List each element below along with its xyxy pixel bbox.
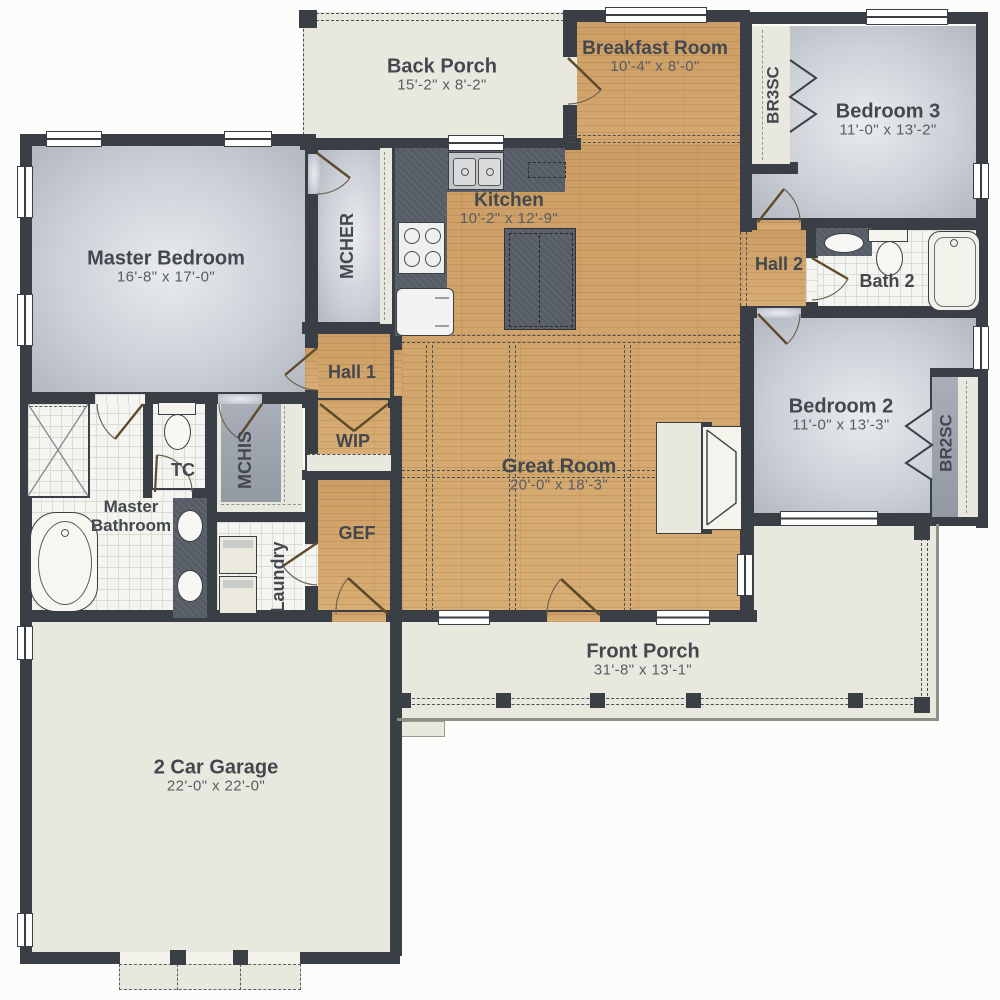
opening — [95, 394, 145, 404]
room-name: Hall 2 — [755, 254, 803, 274]
opening — [305, 544, 318, 586]
window — [224, 131, 272, 147]
bath2-sink — [824, 233, 864, 253]
room-label-hall2: Hall 2 — [755, 254, 803, 274]
room-name: Back Porch — [387, 55, 497, 77]
floor-plan: Back Porch 15'-2" x 8'-2" Breakfast Room… — [0, 0, 1000, 1000]
room-label-bedroom3: Bedroom 3 11'-0" x 13'-2" — [836, 100, 940, 139]
room-label-hall1: Hall 1 — [328, 362, 376, 382]
garage-door-post — [170, 950, 186, 965]
tub-faucet — [61, 529, 69, 537]
room-label-tc: TC — [171, 460, 195, 480]
wall — [205, 512, 317, 522]
washer — [219, 536, 257, 574]
opening — [394, 350, 402, 396]
room-label-master-bathroom: Master Bathroom — [75, 497, 187, 535]
wall — [740, 14, 752, 232]
back-porch-screen-top — [306, 13, 564, 21]
window — [737, 554, 753, 596]
window — [605, 7, 707, 23]
opening — [120, 952, 300, 964]
room-dims: 16'-8" x 17'-0" — [87, 270, 245, 287]
window — [973, 326, 989, 370]
shower-dash — [30, 406, 86, 410]
island-cabinet-dashes — [539, 235, 542, 323]
opening — [318, 400, 388, 408]
opening — [218, 394, 262, 404]
stove — [398, 222, 445, 274]
window — [780, 511, 878, 526]
room-name: Laundry — [268, 541, 288, 612]
room-name: Bedroom 2 — [789, 395, 893, 417]
burner — [425, 228, 441, 244]
kitchen-island — [504, 228, 576, 330]
wall — [302, 470, 402, 480]
room-name: Breakfast Room — [582, 38, 728, 59]
closet-name: MCHIS — [235, 431, 255, 489]
window — [656, 610, 710, 625]
bath2-tub — [928, 231, 980, 311]
room-dims: 11'-0" x 13'-3" — [789, 418, 893, 435]
room-name: Bath 2 — [859, 271, 914, 291]
room-label-wip: WIP — [336, 431, 370, 451]
porch-post — [914, 524, 930, 540]
washer-top — [223, 540, 253, 548]
sink-drain — [486, 168, 494, 176]
garage-door-stoop — [119, 964, 301, 990]
window — [17, 913, 33, 947]
room-dims: 10'-2" x 12'-9" — [460, 211, 558, 228]
kitchen-sink — [448, 152, 504, 190]
opening — [757, 220, 801, 230]
cabinet-dashed-outline — [528, 162, 566, 178]
tub-inner — [934, 237, 976, 307]
tc-toilet-bowl — [164, 414, 191, 450]
room-label-bath2: Bath 2 — [859, 271, 914, 291]
room-label-laundry: Laundry — [268, 541, 288, 612]
ceiling-beam — [624, 345, 631, 611]
ceiling-break-breakfast — [568, 135, 740, 143]
room-dims: 31'-8" x 13'-1" — [586, 663, 699, 680]
room-label-front-porch: Front Porch 31'-8" x 13'-1" — [586, 640, 699, 679]
room-dims: 11'-0" x 13'-2" — [836, 123, 940, 140]
ceiling-break-kitchen-great — [402, 335, 746, 343]
closet-name: BR3SC — [763, 66, 782, 124]
closet-label-br3sc: BR3SC — [763, 66, 782, 124]
garage-door-post — [233, 950, 248, 965]
room-name: Kitchen — [460, 190, 558, 211]
room-name: Master Bedroom — [87, 247, 245, 269]
room-dims: 15'-2" x 8'-2" — [387, 78, 497, 95]
porch-outline-right — [936, 524, 939, 720]
porch-post — [299, 10, 317, 28]
back-porch-screen-left — [303, 14, 309, 140]
garage-door-panel-line — [177, 964, 180, 990]
garage-door-panel-line — [240, 964, 243, 990]
closet-rod — [966, 381, 969, 513]
room-label-kitchen: Kitchen 10'-2" x 12'-9" — [460, 190, 558, 228]
vanity-sink — [177, 570, 203, 602]
burner — [404, 228, 420, 244]
closet-name: MCHER — [337, 213, 357, 279]
window — [438, 610, 490, 625]
wip-pantry-shelf — [307, 454, 391, 471]
room-label-master-bedroom: Master Bedroom 16'-8" x 17'-0" — [87, 247, 245, 286]
cased-opening-hall2 — [740, 232, 747, 306]
opening — [308, 154, 320, 194]
room-label-bedroom2: Bedroom 2 11'-0" x 13'-3" — [789, 395, 893, 434]
room-label-breakfast-room: Breakfast Room 10'-4" x 8'-0" — [582, 38, 728, 76]
porch-post — [590, 693, 605, 708]
dryer-top — [223, 580, 253, 588]
room-name: WIP — [336, 431, 370, 451]
window — [866, 9, 948, 25]
tub-faucet — [950, 239, 958, 247]
opening — [563, 57, 577, 105]
porch-step — [399, 721, 445, 737]
opening — [332, 612, 386, 622]
fireplace-box — [702, 426, 742, 530]
kitchen-great-room-floor — [402, 144, 742, 622]
opening — [757, 308, 801, 318]
gef-floor — [315, 478, 391, 612]
closet-label-mchis: MCHIS — [235, 431, 255, 489]
room-label-back-porch: Back Porch 15'-2" x 8'-2" — [387, 55, 497, 94]
fireplace-hearth — [656, 422, 702, 534]
porch-post — [914, 697, 930, 713]
window — [17, 166, 33, 218]
porch-post — [848, 693, 863, 708]
room-dims: 20'-0" x 18'-3" — [502, 478, 616, 495]
room-name: GEF — [338, 523, 375, 543]
window — [17, 294, 33, 346]
burner — [425, 251, 441, 267]
shower — [26, 402, 90, 498]
room-name: TC — [171, 460, 195, 480]
fridge-handle — [435, 297, 449, 299]
burner — [404, 251, 420, 267]
refrigerator — [396, 288, 454, 336]
ceiling-beam — [426, 345, 433, 611]
room-name: Front Porch — [586, 640, 699, 662]
room-dims: 22'-0" x 22'-0" — [154, 779, 279, 796]
opening — [305, 348, 318, 390]
front-porch-rail-right — [921, 538, 928, 696]
room-label-great-room: Great Room 20'-0" x 18'-3" — [502, 455, 616, 494]
closet-label-mcher: MCHER — [337, 213, 357, 279]
porch-post — [686, 693, 701, 708]
window — [973, 163, 989, 199]
closet-name: BR2SC — [936, 414, 955, 472]
front-porch-rail-bottom — [402, 698, 918, 705]
wall — [143, 398, 153, 498]
window — [17, 626, 33, 660]
room-name: 2 Car Garage — [154, 756, 279, 778]
window — [46, 131, 102, 147]
wall — [390, 622, 402, 956]
room-label-garage: 2 Car Garage 22'-0" x 22'-0" — [154, 756, 279, 795]
room-name: Great Room — [502, 455, 616, 477]
opening — [806, 258, 818, 302]
closet-rod — [284, 406, 287, 502]
closet-rod — [221, 504, 301, 507]
porch-outline-bottom — [397, 718, 939, 721]
fridge-handle — [435, 325, 449, 327]
porch-post — [396, 693, 411, 708]
front-porch-side-floor — [754, 526, 938, 624]
room-name: Hall 1 — [328, 362, 376, 382]
closet-label-br2sc: BR2SC — [936, 414, 955, 472]
kitchen-window — [448, 135, 504, 151]
room-name: Bedroom 3 — [836, 100, 940, 122]
room-label-gef: GEF — [338, 523, 375, 543]
opening — [547, 612, 600, 622]
room-dims: 10'-4" x 8'-0" — [582, 59, 728, 76]
porch-post — [496, 693, 511, 708]
room-name: Master Bathroom — [75, 497, 187, 535]
closet-rod — [384, 152, 387, 320]
sink-drain — [461, 168, 469, 176]
dryer — [219, 576, 257, 614]
